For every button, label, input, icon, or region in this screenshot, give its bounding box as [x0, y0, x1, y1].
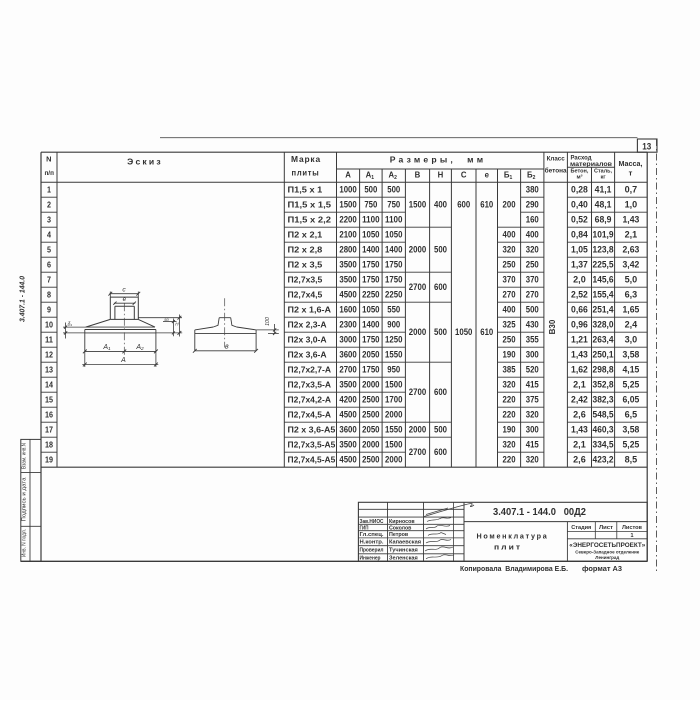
svg-text:1050: 1050 [455, 327, 472, 337]
svg-text:2000: 2000 [409, 327, 426, 337]
svg-text:382,3: 382,3 [593, 395, 614, 405]
svg-text:плит: плит [494, 543, 522, 552]
svg-text:4,15: 4,15 [623, 365, 640, 375]
svg-text:145,6: 145,6 [593, 275, 614, 285]
svg-text:Тучинская: Тучинская [389, 548, 418, 554]
svg-text:П2х 3,0-А: П2х 3,0-А [288, 335, 327, 345]
svg-text:П2,7х2,7-А: П2,7х2,7-А [288, 365, 332, 375]
svg-text:А2: А2 [389, 171, 398, 182]
svg-text:Марка: Марка [291, 155, 321, 164]
svg-text:220: 220 [503, 410, 516, 420]
svg-text:2,6: 2,6 [573, 410, 586, 420]
svg-text:415: 415 [526, 380, 539, 390]
svg-text:2,52: 2,52 [571, 290, 588, 300]
svg-text:1,0: 1,0 [625, 200, 638, 210]
svg-text:П2,7х4,5-А5: П2,7х4,5-А5 [288, 455, 336, 465]
svg-text:с: с [122, 286, 126, 293]
svg-text:1,05: 1,05 [571, 245, 588, 255]
svg-text:Зеленская: Зеленская [389, 555, 418, 561]
svg-text:5,0: 5,0 [625, 275, 638, 285]
svg-text:м³: м³ [576, 173, 582, 180]
svg-text:П2х 3,6-А: П2х 3,6-А [288, 350, 327, 360]
svg-text:2,0: 2,0 [573, 275, 586, 285]
svg-text:0,40: 0,40 [571, 200, 588, 210]
svg-text:6,05: 6,05 [623, 395, 640, 405]
svg-text:355: 355 [526, 335, 539, 345]
svg-text:1050: 1050 [362, 230, 379, 240]
svg-text:15: 15 [45, 395, 53, 405]
svg-text:п/п: п/п [44, 170, 54, 177]
svg-text:Гл.спец.: Гл.спец. [360, 532, 385, 538]
svg-text:материалов: материалов [570, 162, 612, 168]
svg-text:500: 500 [434, 327, 447, 337]
svg-text:2,6: 2,6 [573, 455, 586, 465]
svg-text:160: 160 [526, 215, 539, 225]
svg-text:3,42: 3,42 [623, 260, 640, 270]
svg-text:380: 380 [526, 185, 539, 195]
svg-text:1: 1 [631, 533, 634, 539]
svg-text:600: 600 [434, 387, 447, 397]
svg-text:Капаевская: Капаевская [389, 540, 421, 546]
svg-text:1050: 1050 [385, 230, 402, 240]
svg-text:Класс: Класс [547, 156, 566, 162]
svg-text:1500: 1500 [409, 200, 426, 210]
svg-text:1750: 1750 [385, 275, 402, 285]
svg-text:320: 320 [526, 455, 539, 465]
svg-text:250: 250 [526, 260, 539, 270]
svg-text:250: 250 [503, 260, 516, 270]
svg-text:328,0: 328,0 [593, 320, 614, 330]
svg-text:4500: 4500 [339, 455, 356, 465]
svg-text:5,25: 5,25 [623, 440, 640, 450]
svg-text:251,4: 251,4 [593, 305, 614, 315]
svg-text:2500: 2500 [362, 410, 379, 420]
svg-text:600: 600 [434, 282, 447, 292]
svg-text:1750: 1750 [362, 335, 379, 345]
svg-text:Расход: Расход [571, 156, 592, 162]
svg-text:2700: 2700 [409, 447, 426, 457]
svg-text:1,43: 1,43 [571, 350, 588, 360]
svg-text:2000: 2000 [409, 245, 426, 255]
svg-text:41,1: 41,1 [595, 185, 612, 195]
svg-text:2,1: 2,1 [573, 440, 586, 450]
svg-text:П2,7х4,5-А: П2,7х4,5-А [288, 410, 332, 420]
svg-text:12: 12 [45, 350, 53, 360]
svg-text:1,65: 1,65 [623, 305, 640, 315]
svg-text:Номенклатура: Номенклатура [477, 532, 549, 541]
svg-text:бетона: бетона [545, 167, 568, 174]
svg-text:Ленинград: Ленинград [595, 555, 619, 560]
svg-text:3500: 3500 [339, 260, 356, 270]
svg-text:520: 520 [526, 365, 539, 375]
svg-text:А1: А1 [366, 171, 375, 182]
svg-text:50: 50 [164, 317, 169, 322]
svg-text:Зав.НИОС: Зав.НИОС [360, 519, 384, 525]
svg-text:123,8: 123,8 [593, 245, 614, 255]
svg-text:П2,7х3,5-А: П2,7х3,5-А [288, 380, 332, 390]
svg-text:е: е [123, 296, 127, 303]
svg-text:Соколов: Соколов [389, 525, 411, 531]
svg-text:1400: 1400 [385, 245, 402, 255]
svg-text:3,58: 3,58 [623, 425, 640, 435]
svg-text:Инв. N подл.: Инв. N подл. [22, 529, 28, 557]
svg-text:1500: 1500 [339, 200, 356, 210]
svg-text:1,43: 1,43 [623, 215, 640, 225]
svg-text:430: 430 [526, 320, 539, 330]
svg-text:68,9: 68,9 [595, 215, 612, 225]
svg-text:Петров: Петров [389, 532, 408, 538]
svg-text:3500: 3500 [339, 380, 356, 390]
svg-text:3000: 3000 [339, 335, 356, 345]
svg-text:Стадия: Стадия [571, 525, 591, 531]
svg-text:600: 600 [434, 447, 447, 457]
svg-text:2000: 2000 [409, 425, 426, 435]
svg-text:Копировала Владимирова Е.Б.: Копировала Владимирова Е.Б. [460, 566, 568, 573]
svg-text:352,8: 352,8 [593, 380, 614, 390]
svg-text:220: 220 [503, 455, 516, 465]
svg-text:13: 13 [642, 142, 651, 152]
svg-text:формат А3: формат А3 [582, 566, 622, 573]
svg-text:460,3: 460,3 [593, 425, 614, 435]
svg-text:6,3: 6,3 [625, 290, 638, 300]
svg-text:600: 600 [457, 200, 470, 210]
svg-text:А1: А1 [102, 344, 111, 352]
svg-text:1050: 1050 [362, 305, 379, 315]
svg-text:750: 750 [364, 200, 377, 210]
svg-text:Северо-Западное отделение: Северо-Западное отделение [575, 549, 639, 554]
svg-text:370: 370 [503, 275, 516, 285]
svg-text:325: 325 [503, 320, 516, 330]
svg-text:П2,7х4,2-А: П2,7х4,2-А [288, 395, 332, 405]
svg-text:кг: кг [600, 174, 606, 180]
svg-text:48,1: 48,1 [595, 200, 612, 210]
svg-text:400: 400 [434, 200, 447, 210]
svg-text:1100: 1100 [362, 215, 379, 225]
svg-text:1400: 1400 [362, 320, 379, 330]
svg-text:320: 320 [503, 380, 516, 390]
svg-text:500: 500 [434, 245, 447, 255]
svg-text:270: 270 [526, 290, 539, 300]
svg-text:548,5: 548,5 [593, 410, 614, 420]
svg-text:1750: 1750 [362, 275, 379, 285]
svg-text:1: 1 [47, 185, 51, 195]
svg-text:1500: 1500 [385, 380, 402, 390]
svg-text:П2,7х3,5-А5: П2,7х3,5-А5 [288, 440, 336, 450]
svg-text:225,5: 225,5 [593, 260, 614, 270]
svg-text:500: 500 [434, 425, 447, 435]
svg-text:8: 8 [47, 290, 51, 300]
svg-text:2500: 2500 [362, 395, 379, 405]
svg-text:7: 7 [47, 275, 51, 285]
svg-text:1750: 1750 [362, 365, 379, 375]
svg-text:2000: 2000 [362, 380, 379, 390]
svg-text:375: 375 [526, 395, 539, 405]
svg-text:5,25: 5,25 [623, 380, 640, 390]
svg-text:13: 13 [45, 365, 53, 375]
svg-text:4: 4 [47, 230, 51, 240]
svg-text:0,66: 0,66 [571, 305, 588, 315]
svg-text:1,62: 1,62 [571, 365, 588, 375]
svg-text:16: 16 [45, 410, 53, 420]
svg-text:263,4: 263,4 [593, 335, 614, 345]
svg-text:2250: 2250 [385, 290, 402, 300]
svg-text:0,28: 0,28 [571, 185, 588, 195]
svg-text:415: 415 [526, 440, 539, 450]
svg-text:17: 17 [45, 425, 53, 435]
svg-text:8,5: 8,5 [625, 455, 638, 465]
svg-text:270: 270 [503, 290, 516, 300]
svg-text:1,37: 1,37 [571, 260, 588, 270]
svg-text:П2 х 2,8: П2 х 2,8 [288, 245, 323, 255]
svg-text:1600: 1600 [339, 305, 356, 315]
svg-text:Листов: Листов [622, 525, 643, 531]
svg-text:П2,7х3,5: П2,7х3,5 [288, 275, 323, 285]
svg-text:900: 900 [387, 320, 400, 330]
svg-text:550: 550 [387, 305, 400, 315]
svg-text:2,1: 2,1 [573, 380, 586, 390]
svg-text:2100: 2100 [339, 230, 356, 240]
svg-text:3.407.1 - 144.0: 3.407.1 - 144.0 [20, 276, 27, 322]
svg-text:1750: 1750 [385, 260, 402, 270]
svg-text:3600: 3600 [339, 350, 356, 360]
svg-text:Кирносов: Кирносов [389, 519, 415, 525]
svg-text:1,43: 1,43 [571, 425, 588, 435]
svg-text:2050: 2050 [362, 425, 379, 435]
svg-text:250,1: 250,1 [593, 350, 614, 360]
svg-text:300: 300 [526, 350, 539, 360]
svg-text:2050: 2050 [362, 350, 379, 360]
svg-text:101,9: 101,9 [593, 230, 614, 240]
svg-text:Н: Н [438, 171, 444, 180]
svg-text:Размеры, мм: Размеры, мм [390, 155, 487, 165]
svg-text:П1,5 х 2,2: П1,5 х 2,2 [288, 215, 332, 225]
svg-text:950: 950 [387, 365, 400, 375]
svg-text:П1,5 х 1,5: П1,5 х 1,5 [288, 200, 332, 210]
svg-text:т: т [629, 169, 633, 178]
svg-text:6: 6 [47, 260, 51, 270]
svg-text:200: 200 [503, 200, 516, 210]
svg-text:П1,5 х 1: П1,5 х 1 [288, 185, 323, 195]
svg-text:155,4: 155,4 [593, 290, 614, 300]
svg-text:Проверил: Проверил [360, 548, 384, 554]
svg-text:385: 385 [503, 365, 516, 375]
svg-text:320: 320 [526, 410, 539, 420]
svg-text:1750: 1750 [362, 260, 379, 270]
svg-text:Б2: Б2 [527, 171, 536, 182]
svg-text:610: 610 [480, 200, 493, 210]
svg-text:320: 320 [503, 440, 516, 450]
svg-text:11: 11 [45, 335, 53, 345]
svg-text:0,52: 0,52 [571, 215, 588, 225]
svg-text:2,4: 2,4 [625, 320, 638, 330]
svg-text:плиты: плиты [292, 169, 320, 178]
svg-text:ГИП: ГИП [360, 525, 369, 531]
svg-text:1100: 1100 [385, 215, 402, 225]
svg-text:18: 18 [45, 440, 53, 450]
svg-text:А: А [345, 171, 351, 180]
svg-text:2200: 2200 [339, 215, 356, 225]
svg-text:3500: 3500 [339, 275, 356, 285]
svg-text:1550: 1550 [385, 350, 402, 360]
svg-text:δ₁: δ₁ [68, 322, 73, 328]
svg-text:1000: 1000 [339, 185, 356, 195]
svg-text:П2 х 1,6-А: П2 х 1,6-А [288, 305, 332, 315]
svg-text:3: 3 [47, 215, 51, 225]
svg-text:298,8: 298,8 [593, 365, 614, 375]
svg-text:300: 300 [526, 425, 539, 435]
svg-text:П2 х 3,6-А5: П2 х 3,6-А5 [288, 425, 336, 435]
svg-text:400: 400 [526, 230, 539, 240]
svg-text:П2,7х4,5: П2,7х4,5 [288, 290, 323, 300]
svg-text:2300: 2300 [339, 320, 356, 330]
svg-text:2000: 2000 [385, 455, 402, 465]
svg-text:4500: 4500 [339, 290, 356, 300]
svg-text:0,96: 0,96 [571, 320, 588, 330]
svg-text:е: е [485, 171, 490, 180]
svg-text:9: 9 [47, 305, 51, 315]
svg-text:190: 190 [503, 350, 516, 360]
svg-text:400: 400 [503, 305, 516, 315]
svg-text:1250: 1250 [385, 335, 402, 345]
svg-text:0,7: 0,7 [625, 185, 638, 195]
svg-text:500: 500 [364, 185, 377, 195]
svg-text:С: С [461, 171, 467, 180]
svg-text:2700: 2700 [409, 282, 426, 292]
svg-text:1700: 1700 [385, 395, 402, 405]
svg-text:2700: 2700 [339, 365, 356, 375]
svg-text:290: 290 [526, 200, 539, 210]
svg-text:2000: 2000 [385, 410, 402, 420]
svg-text:2,63: 2,63 [623, 245, 640, 255]
svg-text:Лист: Лист [599, 525, 613, 531]
svg-text:400: 400 [503, 230, 516, 240]
svg-text:220: 220 [503, 395, 516, 405]
svg-text:Подпись и дата: Подпись и дата [22, 477, 28, 521]
svg-text:П2 х 3,5: П2 х 3,5 [288, 260, 323, 270]
svg-text:Инженер: Инженер [360, 555, 381, 561]
svg-text:В: В [415, 171, 421, 180]
svg-text:3,0: 3,0 [625, 335, 638, 345]
svg-text:320: 320 [526, 245, 539, 255]
svg-text:2700: 2700 [409, 387, 426, 397]
svg-text:Н.контр.: Н.контр. [360, 540, 385, 546]
svg-text:500: 500 [526, 305, 539, 315]
svg-text:14: 14 [45, 380, 53, 390]
svg-text:3600: 3600 [339, 425, 356, 435]
svg-text:610: 610 [480, 327, 493, 337]
svg-text:100: 100 [265, 317, 271, 326]
svg-text:А: А [120, 357, 126, 364]
svg-text:5: 5 [47, 245, 51, 255]
svg-text:2,42: 2,42 [571, 395, 588, 405]
svg-text:«ЭНЕРГОСЕТЬПРОЕКТ»: «ЭНЕРГОСЕТЬПРОЕКТ» [569, 542, 645, 549]
svg-text:В30: В30 [548, 319, 557, 334]
svg-text:320: 320 [503, 245, 516, 255]
svg-text:1400: 1400 [362, 245, 379, 255]
svg-text:2500: 2500 [362, 455, 379, 465]
svg-text:2: 2 [47, 200, 51, 210]
svg-text:П2 х 2,1: П2 х 2,1 [288, 230, 323, 240]
svg-text:4500: 4500 [339, 410, 356, 420]
svg-text:2800: 2800 [339, 245, 356, 255]
svg-text:Б1: Б1 [504, 171, 513, 182]
svg-text:3.407.1 - 144.0 00Д2: 3.407.1 - 144.0 00Д2 [493, 507, 587, 518]
svg-text:в: в [225, 343, 229, 350]
svg-text:N: N [46, 155, 51, 164]
svg-text:19: 19 [45, 455, 53, 465]
svg-text:Н: Н [175, 321, 179, 326]
svg-text:Взам. инв.N: Взам. инв.N [22, 443, 28, 469]
svg-text:1500: 1500 [385, 440, 402, 450]
svg-text:0,84: 0,84 [571, 230, 588, 240]
svg-text:4200: 4200 [339, 395, 356, 405]
svg-text:3,58: 3,58 [623, 350, 640, 360]
svg-text:423,2: 423,2 [593, 455, 614, 465]
svg-text:500: 500 [387, 185, 400, 195]
svg-text:2250: 2250 [362, 290, 379, 300]
svg-text:190: 190 [503, 425, 516, 435]
svg-text:2,1: 2,1 [625, 230, 638, 240]
svg-text:250: 250 [503, 335, 516, 345]
svg-text:П2х 2,3-А: П2х 2,3-А [288, 320, 327, 330]
svg-text:1,21: 1,21 [571, 335, 588, 345]
svg-text:1550: 1550 [385, 425, 402, 435]
svg-text:Эскиз: Эскиз [127, 157, 163, 167]
svg-text:370: 370 [526, 275, 539, 285]
svg-text:10: 10 [45, 320, 53, 330]
svg-text:6,5: 6,5 [625, 410, 638, 420]
svg-text:2000: 2000 [362, 440, 379, 450]
svg-text:334,5: 334,5 [593, 440, 614, 450]
svg-text:750: 750 [387, 200, 400, 210]
svg-text:А2: А2 [135, 344, 144, 352]
svg-text:Масса,: Масса, [619, 159, 643, 168]
svg-text:3500: 3500 [339, 440, 356, 450]
